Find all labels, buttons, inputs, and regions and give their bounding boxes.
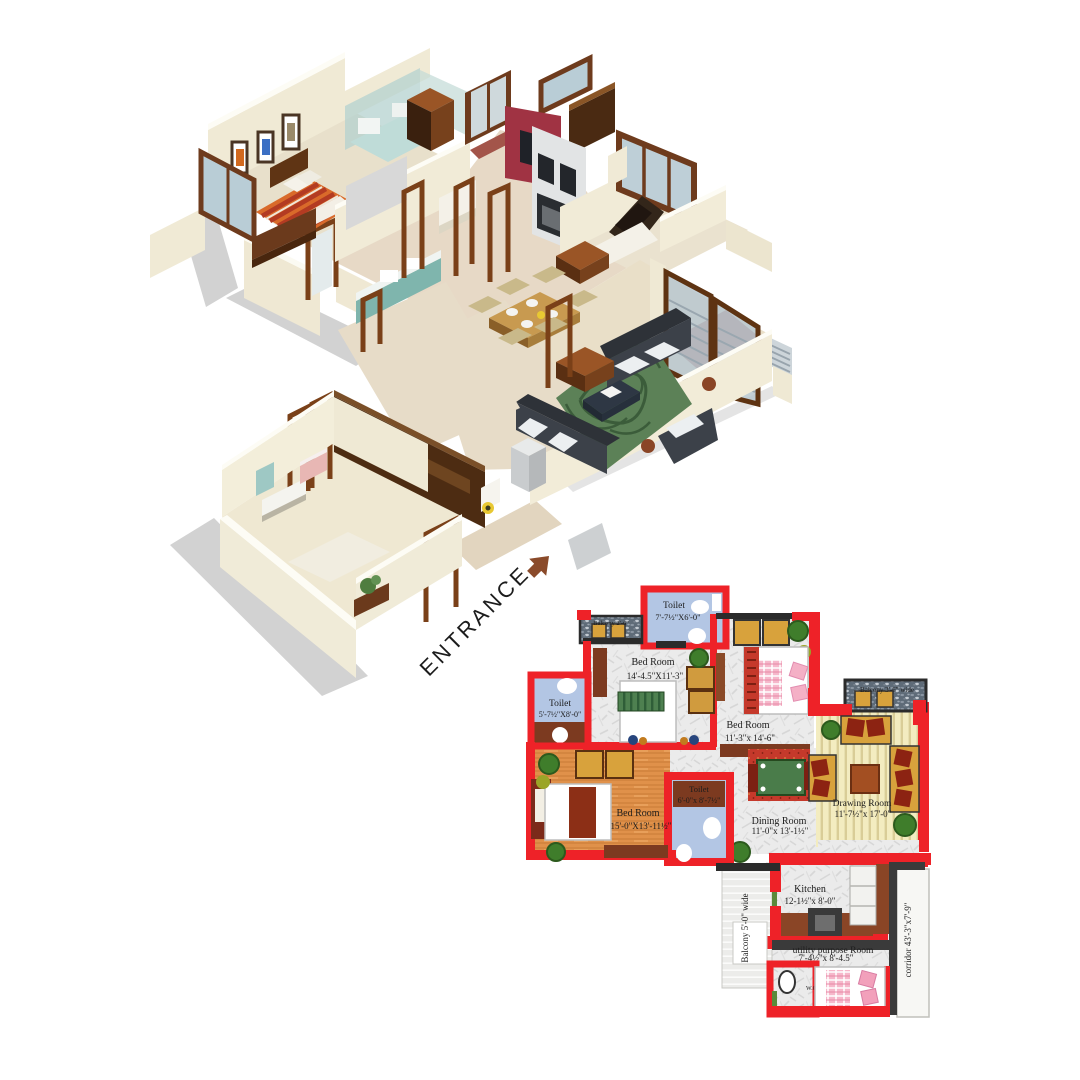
svg-text:corridor 43'-3"x7'-9": corridor 43'-3"x7'-9" <box>903 902 913 977</box>
svg-text:Drawing Room: Drawing Room <box>833 799 892 809</box>
svg-text:6'-0"x 8'-7½": 6'-0"x 8'-7½" <box>678 796 721 805</box>
svg-text:Balcony 5'-0" wide: Balcony 5'-0" wide <box>740 893 750 962</box>
svg-text:Bed Room: Bed Room <box>631 657 674 668</box>
svg-text:Bed Room: Bed Room <box>616 808 659 819</box>
svg-text:14'-4.5"X11'-3": 14'-4.5"X11'-3" <box>627 671 684 681</box>
svg-text:Toilet: Toilet <box>549 699 571 709</box>
svg-text:Toilet: Toilet <box>663 601 685 611</box>
svg-text:Kitchen: Kitchen <box>794 884 826 895</box>
svg-text:11'-3"x 14'-6": 11'-3"x 14'-6" <box>725 733 775 743</box>
svg-text:11'-0"x 13'-1½": 11'-0"x 13'-1½" <box>752 826 809 836</box>
svg-text:15'-0"X13'-11½": 15'-0"X13'-11½" <box>610 821 671 831</box>
svg-text:12-1½"x 8'-0": 12-1½"x 8'-0" <box>785 896 836 906</box>
svg-text:Bed Room: Bed Room <box>726 720 769 731</box>
svg-text:Balcony 3'-6" wide: Balcony 3'-6" wide <box>860 686 914 694</box>
svg-text:7'-7½"X6'-0": 7'-7½"X6'-0" <box>655 612 700 622</box>
svg-text:5'-7½"X8'-0": 5'-7½"X8'-0" <box>539 710 582 719</box>
svg-text:Toilet: Toilet <box>689 784 709 794</box>
svg-text:Balcony 2'-6": Balcony 2'-6" <box>593 620 629 627</box>
svg-text:11'-7½"x 17'-0": 11'-7½"x 17'-0" <box>835 809 892 819</box>
